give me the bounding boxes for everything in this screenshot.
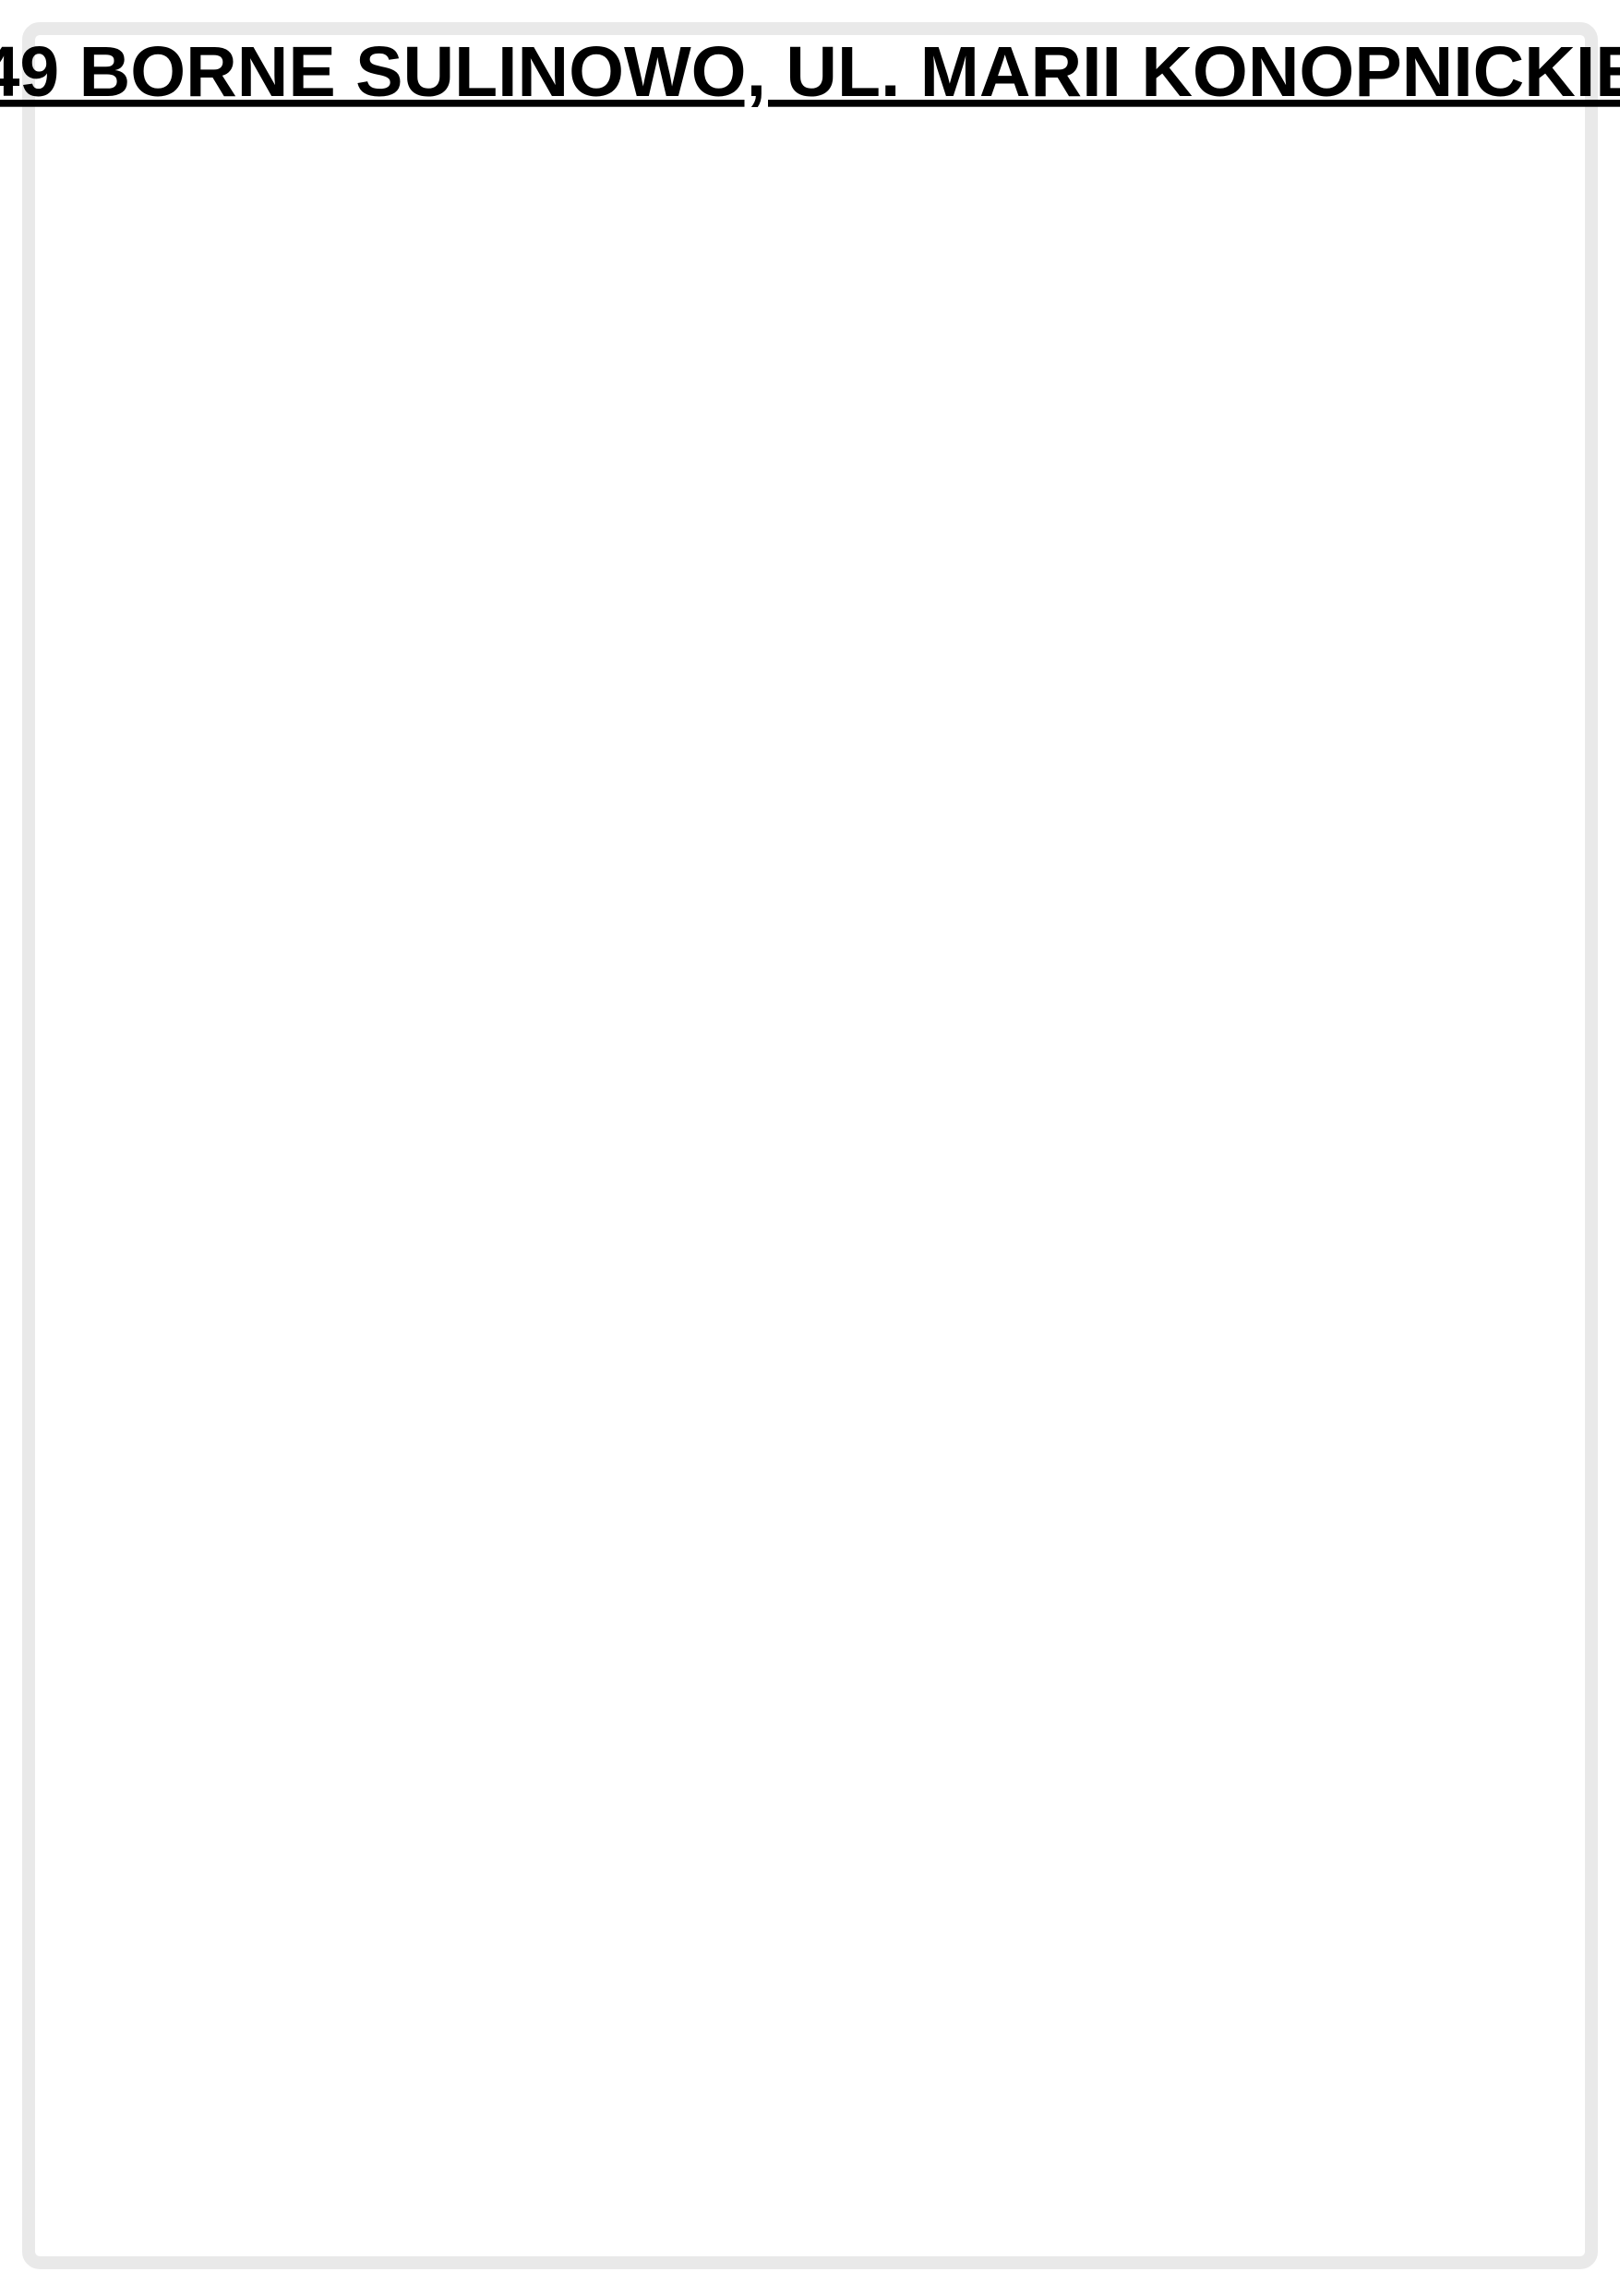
svg-text:78-449 BORNE SULINOWO, UL. MAR: 78-449 BORNE SULINOWO, UL. MARII KONOPNI…	[0, 32, 1620, 112]
